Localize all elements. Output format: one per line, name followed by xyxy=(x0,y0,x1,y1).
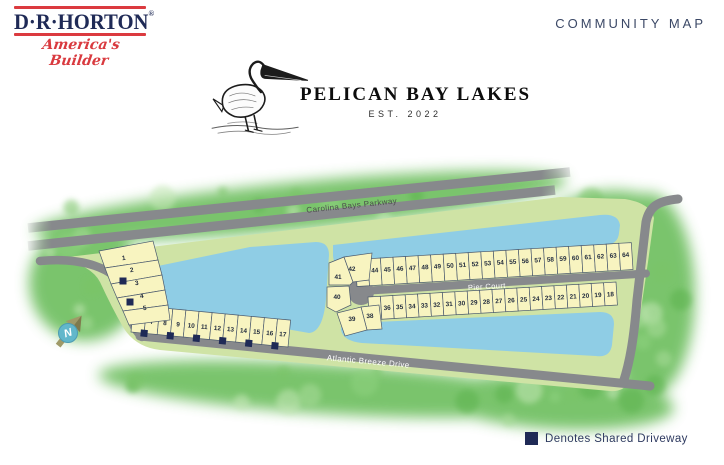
lot-number: 63 xyxy=(609,252,617,259)
lot-number: 49 xyxy=(434,263,442,270)
community-name: PELICAN BAY LAKES xyxy=(300,84,510,106)
community-title: PELICAN BAY LAKES EST. 2022 xyxy=(300,84,510,119)
shared-driveway-marker xyxy=(193,334,201,342)
shared-driveway-swatch xyxy=(525,432,538,445)
lot-number: 53 xyxy=(484,260,492,267)
lot-number: 40 xyxy=(333,294,341,301)
lot-number: 51 xyxy=(459,262,467,269)
lot-number: 36 xyxy=(383,305,391,312)
lot-number: 61 xyxy=(584,254,592,261)
lot-number: 54 xyxy=(497,259,505,266)
lot-number: 10 xyxy=(187,322,195,330)
lot-number: 47 xyxy=(409,265,417,272)
lot-number: 19 xyxy=(594,292,602,299)
lot-number: 23 xyxy=(545,295,553,302)
shared-driveway-marker xyxy=(245,339,253,347)
shared-driveway-marker xyxy=(120,278,127,285)
lot-number: 17 xyxy=(279,331,287,339)
pelican-illustration xyxy=(206,50,314,140)
lot-number: 34 xyxy=(408,303,416,310)
established-year: EST. 2022 xyxy=(300,109,510,119)
lot-number: 14 xyxy=(240,327,248,335)
lot-number: 39 xyxy=(348,316,356,323)
lot-number: 30 xyxy=(458,300,466,307)
community-map-label: COMMUNITY MAP xyxy=(555,16,706,31)
lot-number: 50 xyxy=(446,262,454,269)
dr-horton-logo: D·R·HORTON® America's Builder xyxy=(14,6,146,69)
lot-number: 62 xyxy=(597,253,605,260)
shared-driveway-marker xyxy=(219,337,227,345)
lot-number: 29 xyxy=(470,299,478,306)
registered-mark: ® xyxy=(148,9,154,18)
lot-number: 56 xyxy=(522,258,530,265)
lot-number: 31 xyxy=(445,301,453,308)
lot-number: 20 xyxy=(582,293,590,300)
lot-number: 64 xyxy=(622,252,630,259)
lot-number: 55 xyxy=(509,259,517,266)
shared-driveway-marker xyxy=(140,329,148,337)
lot-number: 24 xyxy=(532,296,540,303)
lot-number: 41 xyxy=(334,274,342,281)
lot-number: 57 xyxy=(534,257,542,264)
lot-number: 35 xyxy=(396,304,404,311)
lot-number: 15 xyxy=(253,329,261,337)
lot-number: 28 xyxy=(483,299,491,306)
shared-driveway-marker xyxy=(271,342,279,350)
lot-number: 46 xyxy=(396,266,404,273)
lot-number: 27 xyxy=(495,298,503,305)
lot-number: 11 xyxy=(201,324,209,332)
lot-number: 21 xyxy=(569,293,577,300)
lot-number: 13 xyxy=(227,326,235,334)
lot-number: 38 xyxy=(366,313,374,320)
lot-number: 45 xyxy=(384,266,392,273)
lot-number: 44 xyxy=(371,267,379,274)
lot-number: 16 xyxy=(266,330,274,338)
lot-number: 26 xyxy=(507,297,515,304)
site-map: 4344454647484950515253545556575859606162… xyxy=(0,0,724,465)
lot-number: 52 xyxy=(471,261,479,268)
lot-number: 42 xyxy=(348,266,356,273)
lot-number: 12 xyxy=(213,325,221,333)
lot-number: 22 xyxy=(557,294,565,301)
lot-number: 33 xyxy=(421,302,429,309)
logo-wordmark: D·R·HORTON® xyxy=(14,9,138,33)
lot-number: 48 xyxy=(421,264,429,271)
lot-number: 18 xyxy=(607,291,615,298)
legend-label: Denotes Shared Driveway xyxy=(545,433,688,445)
lot-number: 58 xyxy=(547,256,555,263)
community-map-page: D·R·HORTON® America's Builder COMMUNITY … xyxy=(0,0,724,465)
shared-driveway-marker xyxy=(166,332,174,340)
lot-number: 59 xyxy=(559,256,567,263)
lot-number: 25 xyxy=(520,296,528,303)
legend: Denotes Shared Driveway xyxy=(525,432,688,445)
logo-tagline: America's Builder xyxy=(12,37,148,69)
lot-number: 60 xyxy=(572,255,580,262)
shared-driveway-marker xyxy=(127,299,134,306)
lot-number: 32 xyxy=(433,302,441,309)
